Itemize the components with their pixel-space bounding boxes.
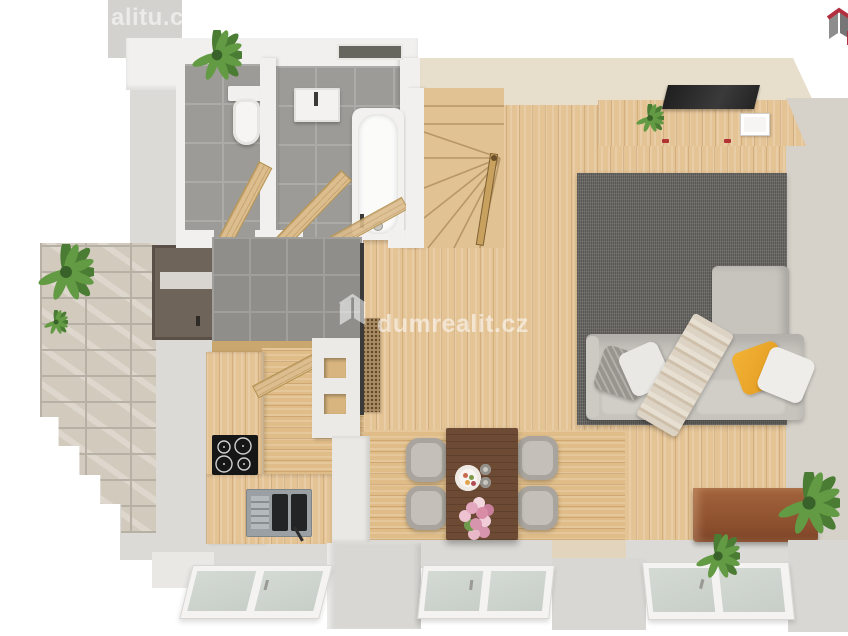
wc-left-wall [176, 64, 185, 240]
window-2 [417, 565, 555, 619]
window-1-pane-left [187, 571, 256, 611]
bottom-pier-2 [552, 558, 646, 630]
bowl-1 [480, 464, 491, 475]
sideboard-plant [636, 104, 664, 132]
watermark-center: dumrealit.cz [377, 310, 529, 339]
sideboard-handle-2 [724, 139, 731, 143]
bath-top-window [337, 44, 403, 60]
sideboard-picture-frame [740, 113, 770, 136]
flower-bouquet [466, 502, 478, 514]
bottom-pier-1 [327, 543, 421, 629]
sink-basin-2 [291, 494, 307, 531]
cubby-niche-2 [324, 394, 346, 414]
dining-chair-3 [517, 436, 558, 480]
kitchen-sink [246, 489, 312, 537]
kitchen-cubby-unit [312, 338, 360, 438]
dining-chair-2 [406, 486, 447, 530]
window-1-pane-right [254, 571, 323, 611]
chair-seat [522, 441, 553, 475]
sink-basin-1 [272, 494, 288, 531]
toilet-bowl [233, 99, 260, 145]
plate [455, 465, 481, 491]
dining-chair-4 [517, 486, 558, 530]
floor-plan-render: alitu.cz dumrealit.cz [0, 0, 848, 636]
dining-chair-1 [406, 438, 447, 482]
bowl-2 [480, 477, 491, 488]
plant-on-stone-wall [38, 244, 94, 300]
vanity-faucet [314, 92, 318, 106]
entrance-door-handle [196, 316, 200, 326]
window-2-pane-right [487, 571, 546, 611]
window-2-pane-left [424, 571, 483, 611]
chair-seat [522, 491, 553, 525]
bottom-right-corner-wall [788, 540, 848, 632]
stairs-side-wall [406, 88, 424, 248]
winder-stairs [424, 88, 504, 248]
window-1 [179, 565, 332, 619]
cubby-niche-1 [324, 358, 346, 378]
plant-window-sill [696, 534, 740, 578]
plant-stone-small [44, 310, 68, 334]
bottom-floor-strip [552, 540, 626, 560]
entrance-door-glass-stripe [160, 272, 220, 289]
cooktop [212, 435, 258, 475]
chair-seat [411, 491, 442, 525]
watermark-center-house-icon [336, 294, 372, 328]
plant-beside-chest [778, 472, 840, 534]
watermark-top-left: alitu.cz [111, 4, 196, 32]
wall-stub-1 [176, 230, 214, 248]
kitchen-peninsula-wall [332, 436, 370, 542]
wc-bath-divider-wall [260, 58, 276, 240]
dumrealit-logo-icon [827, 6, 848, 48]
sink-drainboard [251, 496, 269, 529]
tv [662, 85, 760, 109]
plant-top-left [192, 30, 242, 80]
sideboard-handle-1 [662, 139, 669, 143]
plate-food [463, 473, 468, 478]
chair-seat [411, 443, 442, 477]
radiator-partition [360, 243, 364, 415]
